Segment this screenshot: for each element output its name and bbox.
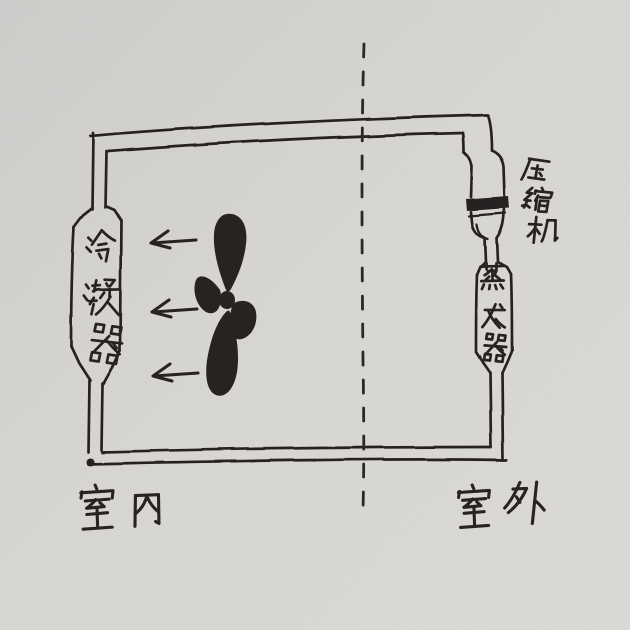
photo-of-sketch [0,0,630,630]
pipe-right-upper-inner [463,133,464,152]
corner-ink-blob [86,458,94,466]
pipe-right-lower-inner [490,373,491,447]
pipe-left-upper-outer [92,133,93,209]
pipe-left-lower-inner [101,384,102,450]
fan-hub [219,291,235,309]
diagram-canvas [0,0,630,630]
pipe-left-upper-inner [105,151,106,207]
paper-grain-texture [0,0,630,630]
pipe-left-lower-outer [88,381,89,452]
pipe-right-lower-outer [502,373,503,460]
